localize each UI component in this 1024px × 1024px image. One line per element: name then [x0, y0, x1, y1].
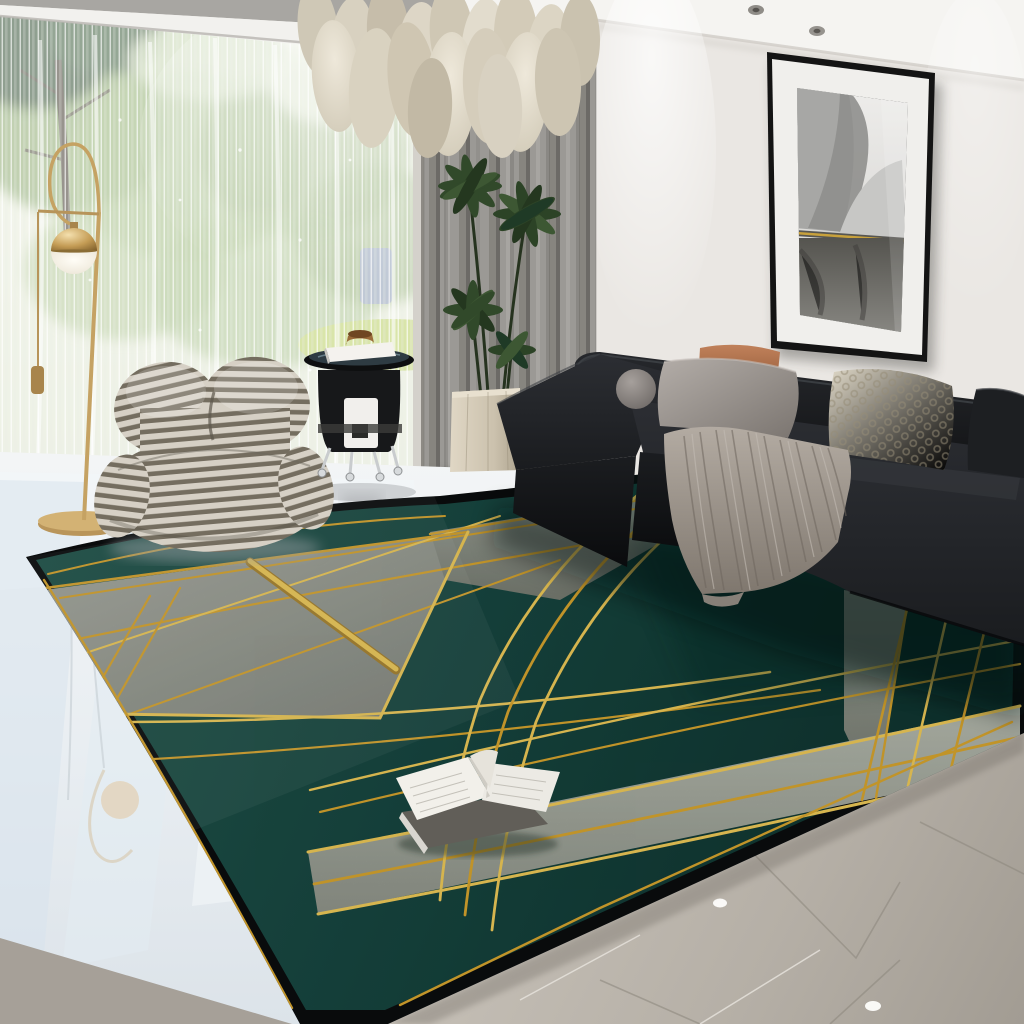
art-image — [793, 85, 913, 338]
downlight-core — [753, 8, 760, 12]
floor-light-speck — [865, 1001, 881, 1011]
lamp-ball-reflection — [101, 781, 139, 819]
bowl-opening — [348, 330, 372, 338]
scene-canvas — [0, 0, 1024, 1024]
lamp-counterweight — [31, 366, 44, 394]
table-belt — [318, 424, 402, 433]
sphere-seam — [51, 249, 97, 252]
pillow-gray — [658, 359, 799, 438]
pillow-ball — [616, 369, 656, 409]
living-room-scene — [0, 0, 1024, 1024]
pillow-black — [968, 389, 1024, 478]
downlight-core — [814, 29, 821, 33]
wall-art-frame — [767, 52, 942, 372]
table-front-panel — [344, 398, 378, 448]
floor-light-speck — [713, 899, 727, 908]
